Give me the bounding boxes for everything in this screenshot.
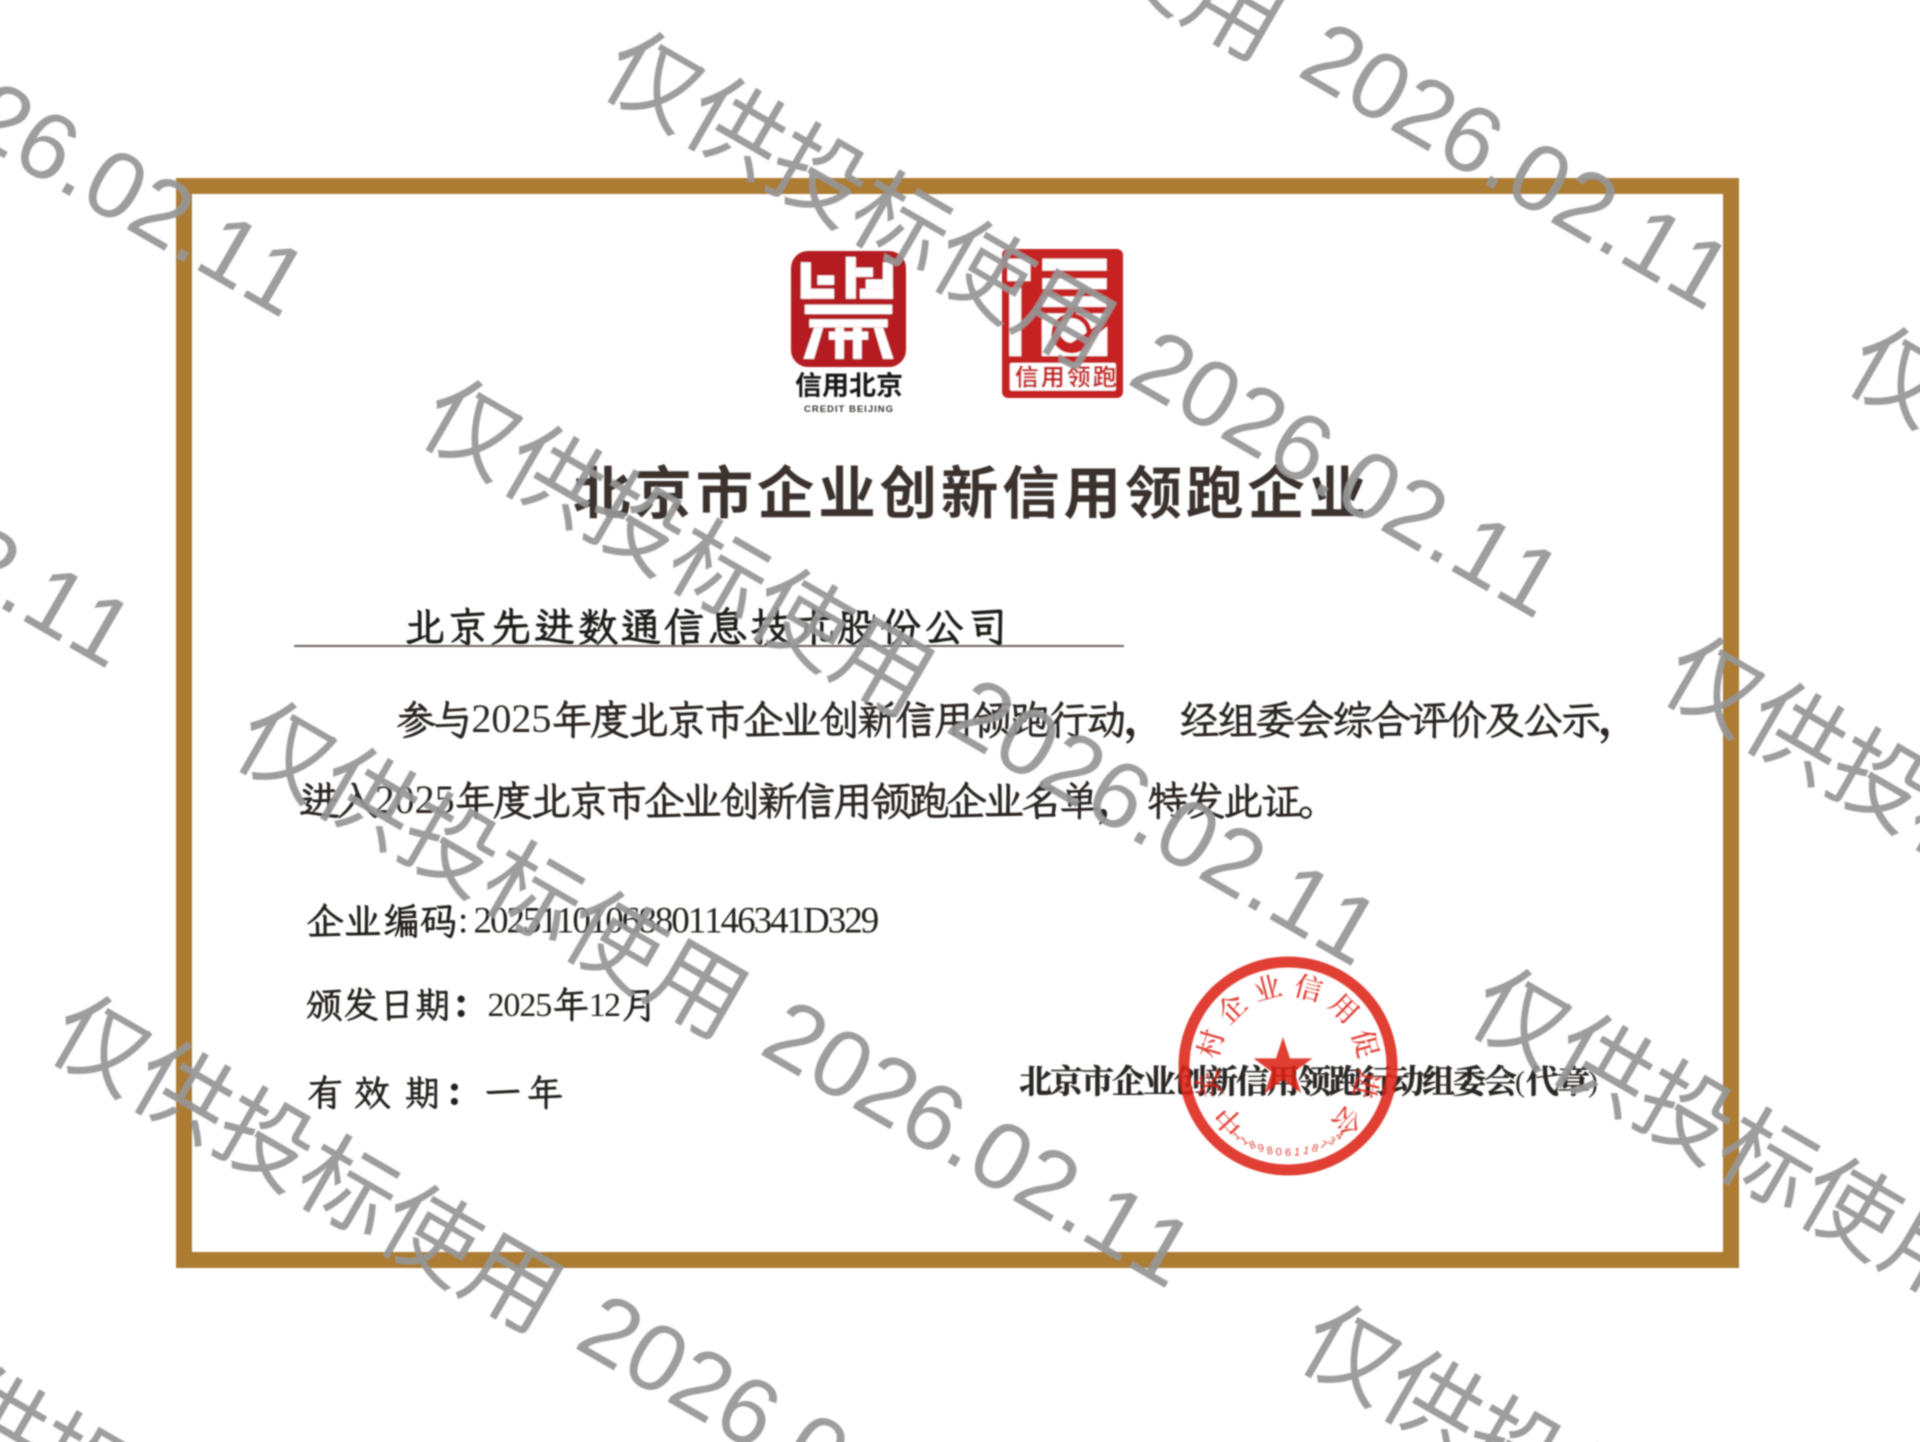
svg-text:1: 1 [1302,1145,1310,1158]
svg-text:2026.02.11: 2026.02.11 [933,657,1398,987]
svg-text:2025: 2025 [471,696,551,741]
svg-text:2026.02.11: 2026.02.11 [1115,309,1580,639]
svg-text:2026.02.11: 2026.02.11 [0,359,151,689]
svg-text:0: 0 [1275,1146,1282,1159]
svg-text:2026.02.11: 2026.02.11 [0,8,325,338]
svg-text:2026.02.11: 2026.02.11 [1285,1,1750,331]
svg-text:12: 12 [589,987,621,1024]
svg-text:8: 8 [1266,1145,1274,1158]
svg-text:1: 1 [1293,1146,1300,1159]
svg-text:2025: 2025 [488,987,553,1024]
svg-text:6: 6 [1285,1147,1291,1159]
svg-text:(: ( [1515,1066,1525,1099]
svg-text:2026.02.11: 2026.02.11 [562,1273,1027,1442]
svg-text:9: 9 [1256,1142,1266,1155]
svg-text:CREDIT BEIJING: CREDIT BEIJING [804,404,894,415]
